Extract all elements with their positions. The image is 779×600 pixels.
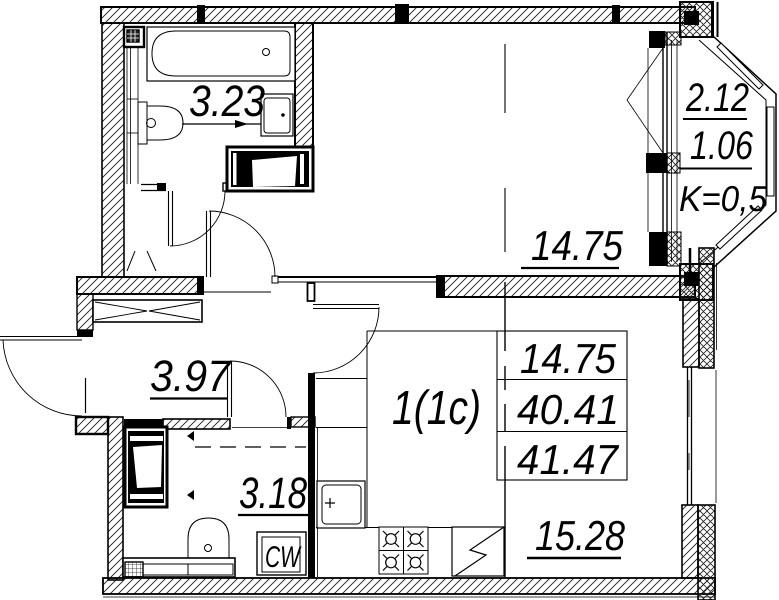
svg-text:3.97: 3.97: [150, 352, 231, 401]
svg-text:1.06: 1.06: [690, 124, 754, 168]
svg-text:2.12: 2.12: [685, 76, 749, 120]
svg-text:3.18: 3.18: [239, 469, 307, 518]
svg-text:3.23: 3.23: [189, 77, 265, 126]
svg-text:40.41: 40.41: [517, 386, 619, 433]
svg-text:41.47: 41.47: [517, 436, 620, 483]
svg-text:CW: CW: [265, 541, 302, 574]
svg-text:K=0,5: K=0,5: [679, 178, 768, 219]
svg-text:14.75: 14.75: [531, 222, 624, 269]
svg-text:1(1с): 1(1с): [392, 382, 481, 435]
svg-text:14.75: 14.75: [520, 335, 617, 382]
svg-text:15.28: 15.28: [535, 512, 626, 559]
